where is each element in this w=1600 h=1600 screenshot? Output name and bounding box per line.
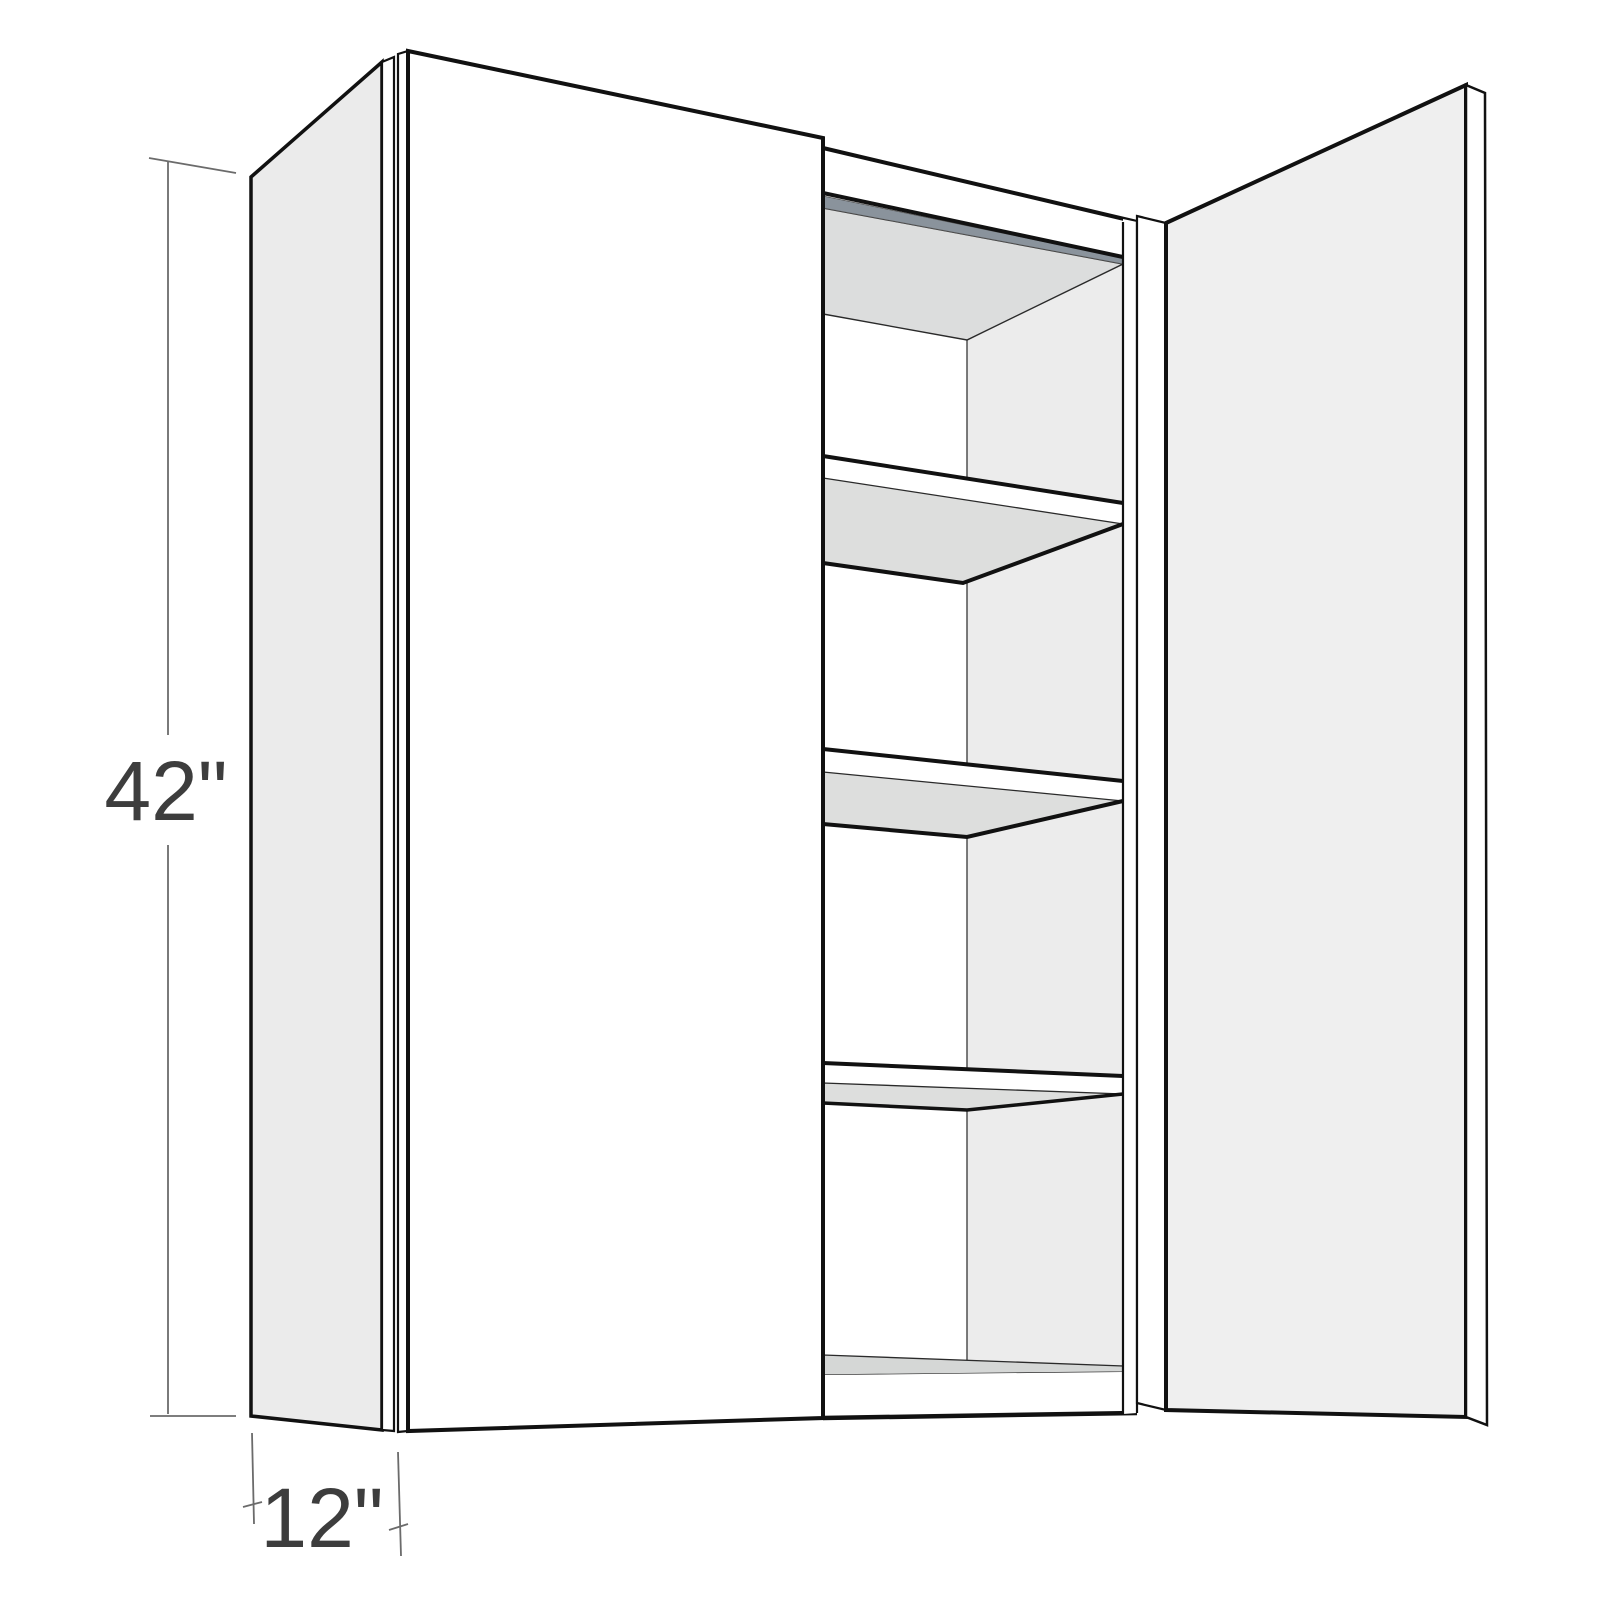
depth-dimension: 12"	[243, 1433, 408, 1565]
height-dimension-label: 42"	[104, 744, 227, 838]
depth-witness-left	[252, 1433, 254, 1524]
cabinet-diagram: 42" 12"	[0, 0, 1600, 1600]
depth-tick-left	[243, 1502, 262, 1507]
cabinet-interior	[823, 148, 1137, 1418]
product-diagram-canvas: 42" 12"	[0, 0, 1600, 1600]
right-door-outer-edge	[1466, 85, 1487, 1425]
right-door-inner-face	[1166, 85, 1466, 1417]
carcass-front-edge-strip	[382, 57, 394, 1431]
depth-witness-right	[398, 1452, 401, 1556]
left-door	[408, 51, 823, 1431]
cabinet-left-side	[251, 51, 823, 1432]
cabinet-right-door-open	[1137, 85, 1487, 1425]
height-dimension: 42"	[104, 158, 236, 1416]
left-side-panel	[251, 62, 382, 1430]
height-extension-top	[149, 158, 236, 173]
bottom-front-rail	[823, 1372, 1123, 1418]
right-frame-edge-strip	[1123, 219, 1137, 1414]
depth-dimension-label: 12"	[260, 1471, 383, 1565]
depth-tick-right	[389, 1524, 408, 1530]
right-door-hinge-edge	[1137, 216, 1166, 1410]
